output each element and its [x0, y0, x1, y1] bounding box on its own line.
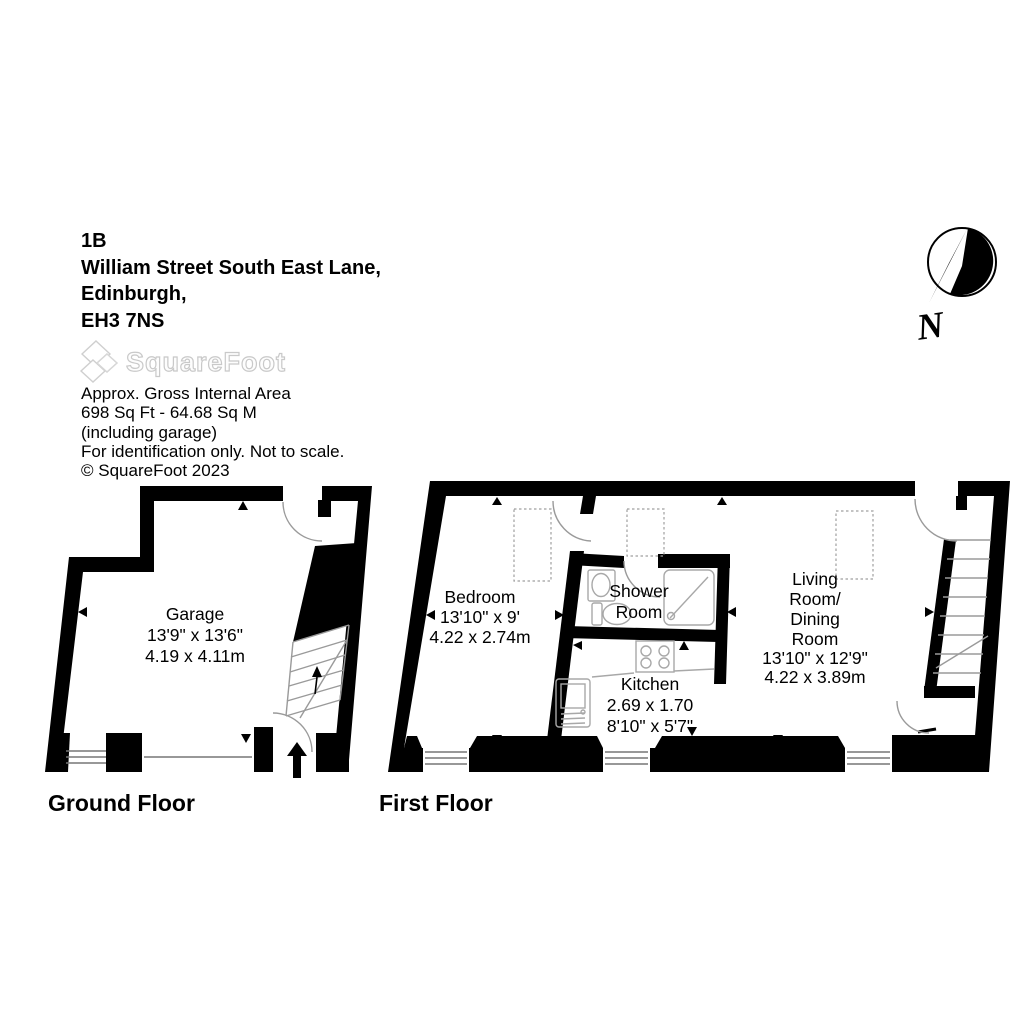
room-dim-imperial-garage: 13'9" x 13'6" — [147, 625, 243, 645]
room-dim-metric-living-room: 4.22 x 3.89m — [764, 667, 865, 687]
furniture-outline — [514, 509, 551, 581]
floorplan-sheet: 1B William Street South East Lane, Edinb… — [0, 0, 1024, 1024]
room-dim-imperial-kitchen: 8'10" x 5'7" — [607, 716, 693, 736]
window-opening — [64, 746, 108, 774]
room-dim-imperial-living-room: 13'10" x 12'9" — [762, 648, 868, 668]
wall-pier — [404, 736, 422, 748]
wall-pier — [254, 727, 273, 772]
room-label-living-room: Room/ — [789, 589, 841, 609]
door-opening — [283, 484, 322, 503]
dimension-arrow — [717, 497, 727, 505]
wall-pier — [316, 733, 349, 772]
room-label-living-room: Room — [792, 629, 839, 649]
room-dim-metric-kitchen: 2.69 x 1.70 — [607, 695, 694, 715]
shower-tray-icon — [664, 570, 714, 625]
dimension-arrow — [679, 641, 689, 650]
dimension-arrow — [78, 607, 87, 617]
window-opening — [603, 746, 650, 774]
first-floor-plan: Bedroom 13'10" x 9' 4.22 x 2.74m Shower … — [388, 480, 1010, 774]
room-label-garage: Garage — [166, 604, 224, 624]
door-opening — [915, 480, 958, 497]
room-dim-metric-bedroom: 4.22 x 2.74m — [429, 627, 530, 647]
dimension-arrow — [241, 734, 251, 743]
furniture-outline — [627, 509, 664, 556]
dimension-arrow — [727, 607, 736, 617]
dimension-arrow — [426, 610, 435, 620]
wall-pier — [470, 736, 603, 748]
room-label-shower-room: Shower — [609, 581, 669, 601]
door-jamb — [318, 500, 331, 517]
room-label-living-room: Dining — [790, 609, 840, 629]
dimension-arrow — [492, 497, 502, 505]
north-label: N — [913, 304, 947, 349]
ground-floor-plan: Garage 13'9" x 13'6" 4.19 x 4.11m — [45, 484, 372, 778]
floorplan-canvas: N — [0, 0, 1024, 1024]
room-label-bedroom: Bedroom — [444, 587, 515, 607]
furniture-outline — [836, 511, 873, 579]
door-jamb — [956, 496, 967, 510]
door-arc — [283, 502, 322, 541]
dimension-arrow — [573, 641, 582, 650]
wall-pier — [655, 736, 845, 748]
shower-room-wall — [714, 554, 730, 684]
wall-pier — [892, 735, 975, 748]
garage-door-opening — [142, 746, 254, 774]
window-opening — [423, 746, 469, 774]
wall-pier — [106, 733, 142, 772]
room-label-living-room: Living — [792, 569, 838, 589]
door-arc — [915, 499, 957, 541]
room-dim-imperial-bedroom: 13'10" x 9' — [440, 607, 520, 627]
room-label-shower-room: Room — [616, 602, 663, 622]
stair-direction-arrow — [312, 666, 322, 677]
door-jamb — [580, 496, 596, 514]
room-label-kitchen: Kitchen — [621, 674, 679, 694]
window-opening — [845, 746, 892, 774]
north-arrow-icon: N — [913, 228, 996, 349]
hob-icon — [636, 641, 674, 672]
dimension-arrow — [925, 607, 934, 617]
door-arc — [897, 701, 929, 733]
stair-landing-wall — [924, 686, 975, 698]
dimension-arrow — [238, 501, 248, 510]
shower-room-wall — [564, 626, 720, 642]
room-dim-metric-garage: 4.19 x 4.11m — [145, 646, 245, 666]
